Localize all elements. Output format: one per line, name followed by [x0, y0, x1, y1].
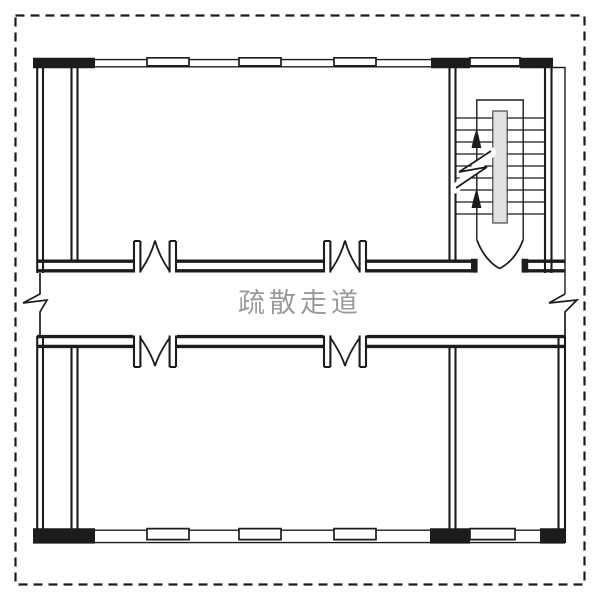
floor-plan-drawing: 疏散走道: [0, 0, 600, 600]
door-bottom-room-1: [134, 336, 176, 368]
corridor-top-wall: [37, 261, 565, 271]
bottom-block-partition-wall-left: [72, 347, 78, 530]
bottom-block-right-wall: [559, 336, 566, 543]
door-jambs: [134, 336, 176, 368]
door-top-room-2: [324, 241, 366, 273]
staircase: [455, 100, 545, 273]
stairwell-left-wall: [450, 67, 456, 262]
corridor-bottom-wall: [37, 337, 565, 347]
door-swing: [141, 338, 170, 366]
stair-door-jamb-piers: [471, 259, 528, 273]
floor-plan-page: 疏散走道: [0, 0, 600, 600]
door-jambs: [324, 241, 366, 273]
door-jambs: [134, 241, 176, 273]
top-block-left-wall: [37, 58, 43, 273]
bottom-block: [33, 336, 565, 544]
door-swing: [331, 241, 360, 272]
door-bottom-room-2: [324, 336, 366, 368]
stair-flight-divider: [493, 111, 507, 223]
door-jambs: [324, 336, 366, 368]
bottom-block-partition-wall-right: [450, 347, 456, 530]
top-block-right-wall: [545, 58, 552, 273]
bottom-block-left-wall: [37, 336, 43, 543]
door-swing: [331, 338, 360, 366]
corridor-break-left: [23, 273, 47, 336]
door-top-room-1: [134, 241, 176, 273]
corridor-label: 疏散走道: [238, 288, 362, 319]
top-block-partition-wall: [72, 67, 78, 262]
door-swing: [141, 241, 170, 272]
corridor-break-right: [549, 294, 577, 336]
stair-door-swing: [477, 240, 523, 269]
